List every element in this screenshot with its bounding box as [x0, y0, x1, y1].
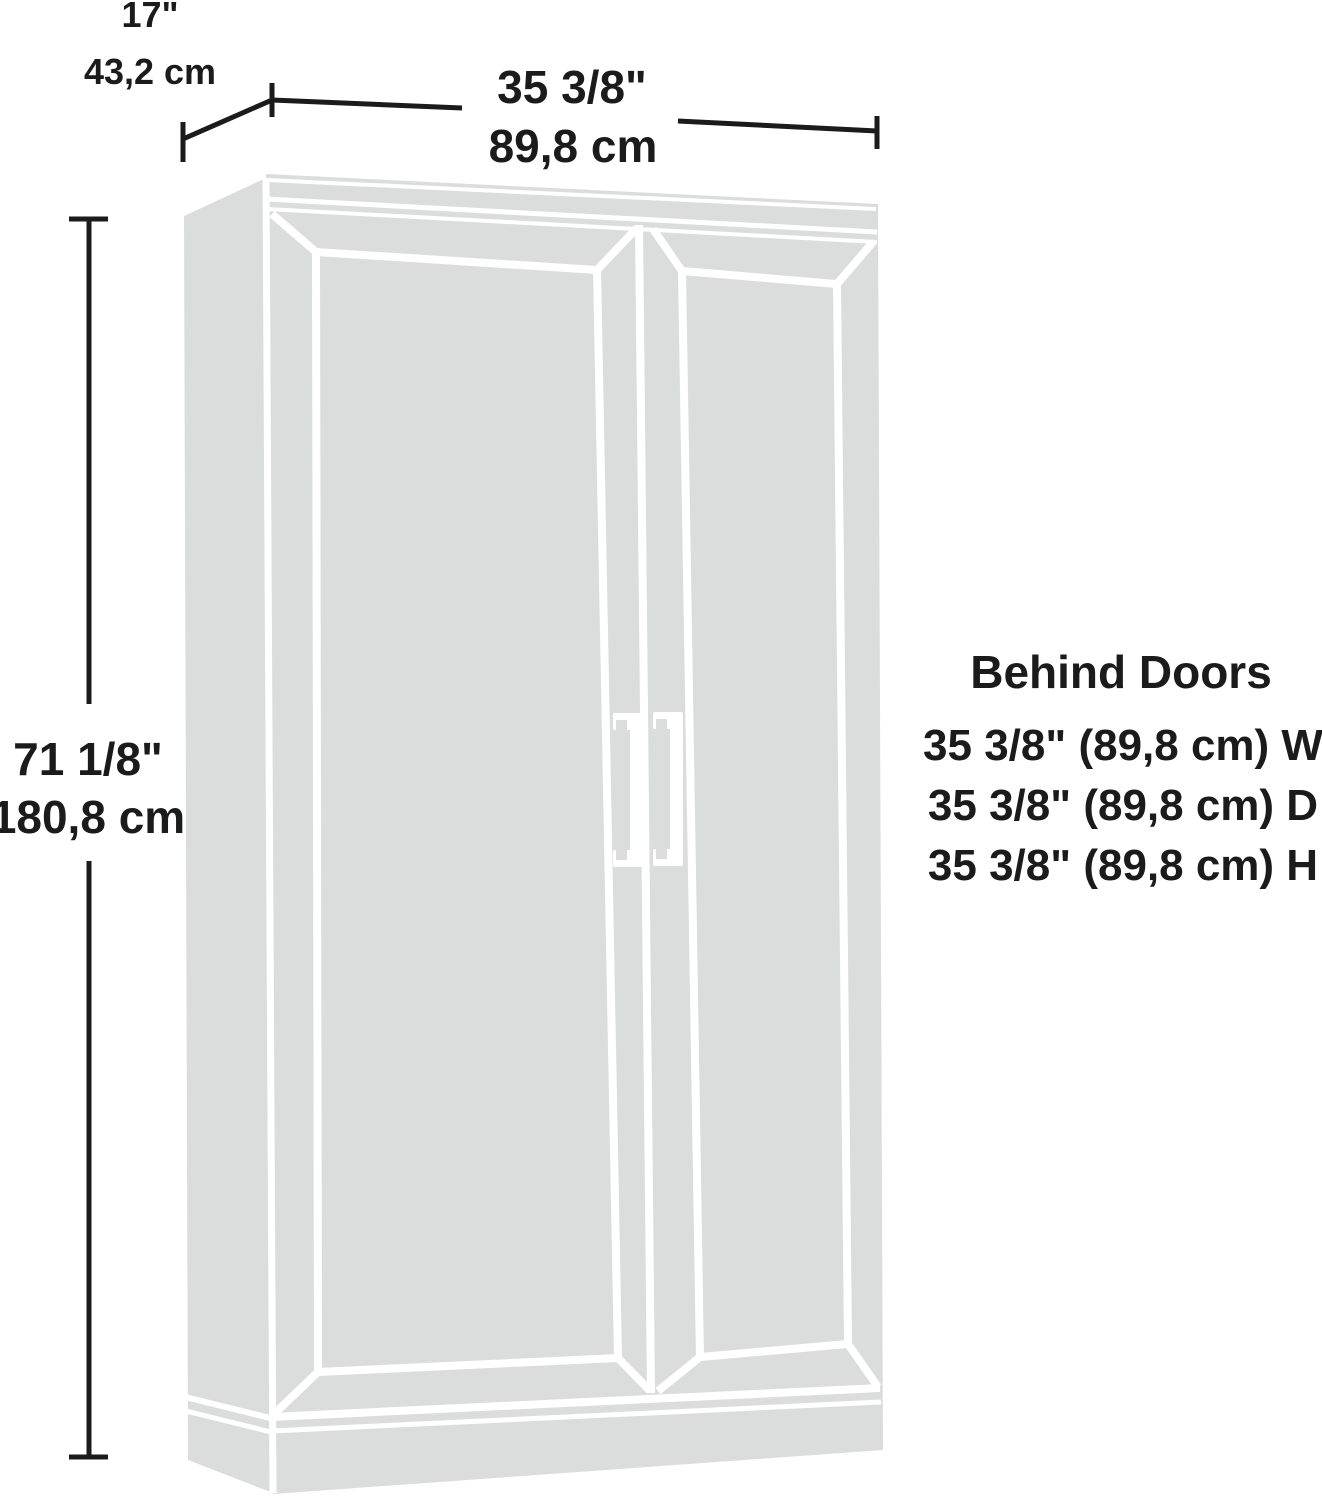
cabinet-front	[266, 174, 883, 1494]
cabinet-dimension-diagram-page: 17" 43,2 cm 35 3/8" 89,8 cm 71 1/8" 180,…	[0, 0, 1322, 1500]
width-label-cm: 89,8 cm	[489, 120, 658, 172]
behind-doors-height-line: 35 3/8" (89,8 cm) H	[928, 841, 1318, 890]
behind-doors-block: Behind Doors 35 3/8" (89,8 cm) W 35 3/8"…	[923, 646, 1322, 890]
behind-doors-depth-line: 35 3/8" (89,8 cm) D	[928, 781, 1318, 830]
behind-doors-width-line: 35 3/8" (89,8 cm) W	[923, 721, 1322, 770]
width-dimension-line-left	[272, 100, 462, 108]
width-label-inches: 35 3/8"	[497, 61, 647, 113]
cabinet-drawing	[184, 174, 883, 1494]
width-dimension-line-right	[678, 121, 877, 131]
cabinet-dimension-diagram: 17" 43,2 cm 35 3/8" 89,8 cm 71 1/8" 180,…	[0, 0, 1322, 1500]
depth-dimension-line	[183, 100, 272, 139]
cabinet-side-panel	[184, 178, 273, 1493]
depth-label-cm: 43,2 cm	[84, 51, 216, 92]
height-label-inches: 71 1/8"	[13, 733, 163, 785]
behind-doors-title: Behind Doors	[970, 646, 1272, 698]
depth-label-inches: 17"	[121, 0, 178, 35]
height-label-cm: 180,8 cm	[0, 791, 185, 843]
